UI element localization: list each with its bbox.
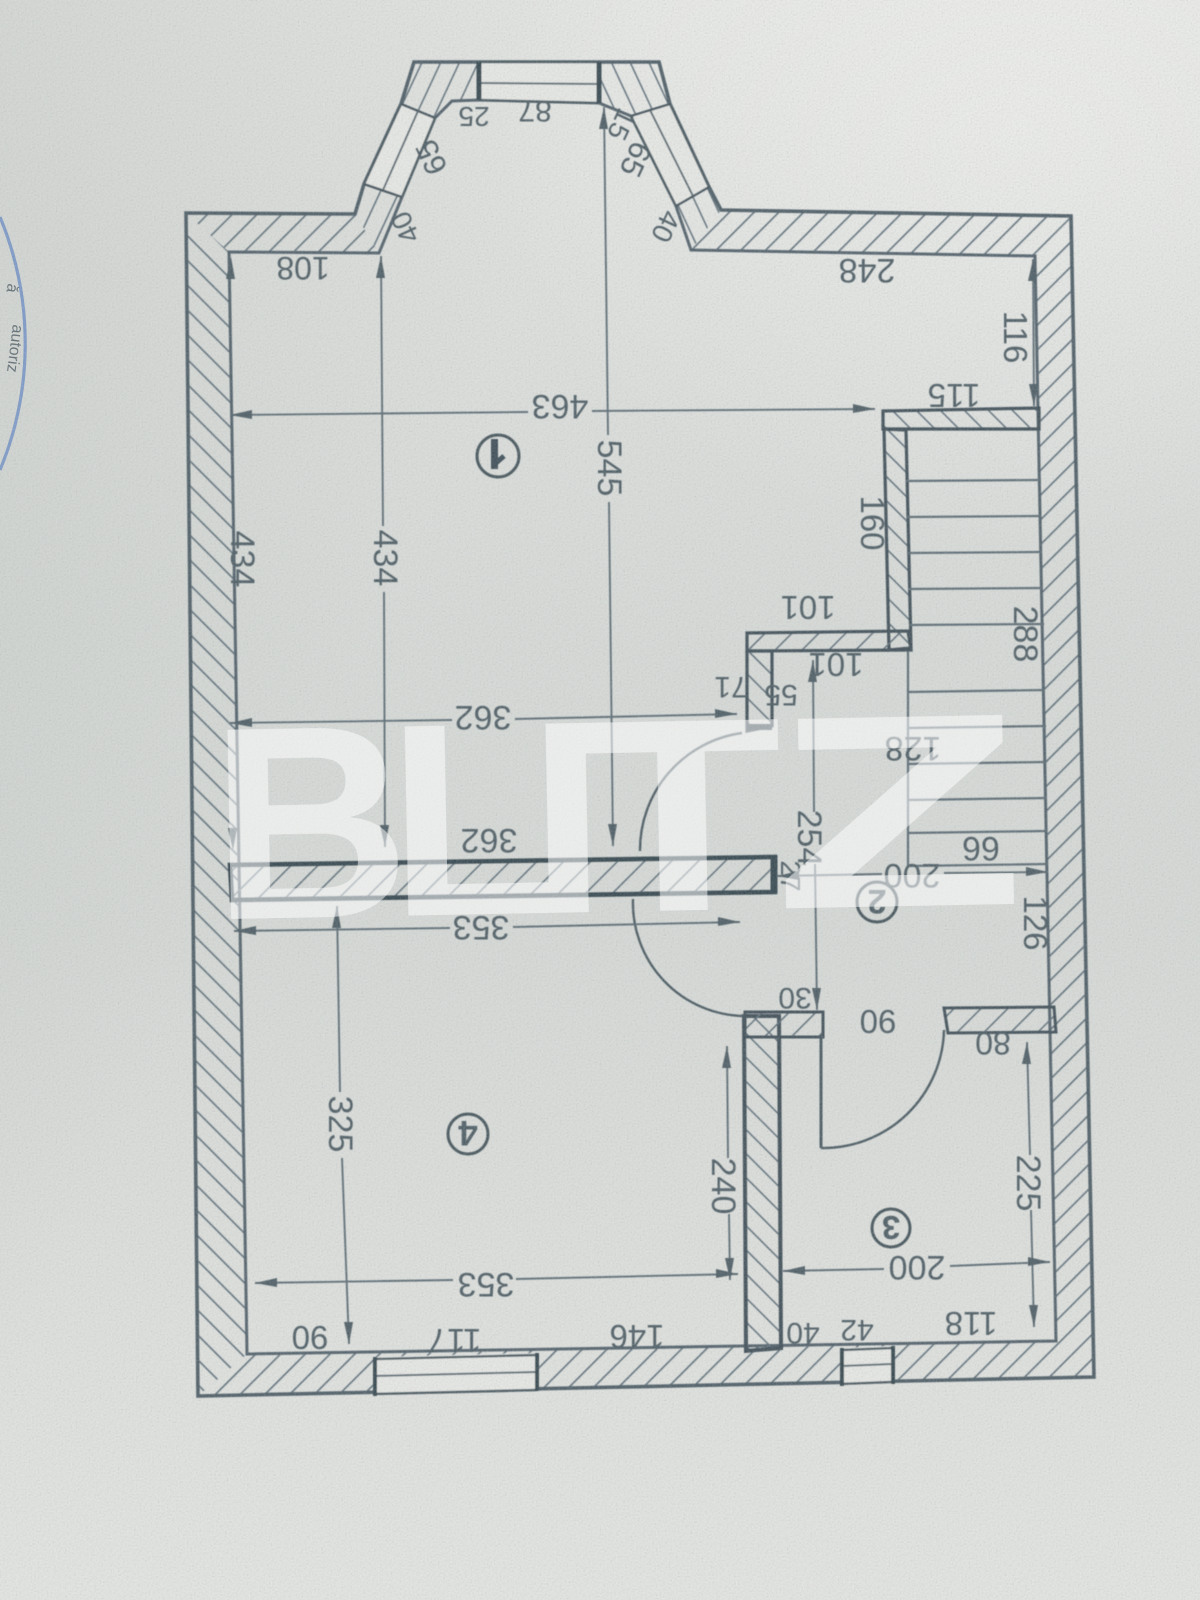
svg-text:Z: Z xyxy=(769,656,1027,968)
svg-text:B: B xyxy=(208,668,412,979)
svg-text:T: T xyxy=(578,660,785,971)
